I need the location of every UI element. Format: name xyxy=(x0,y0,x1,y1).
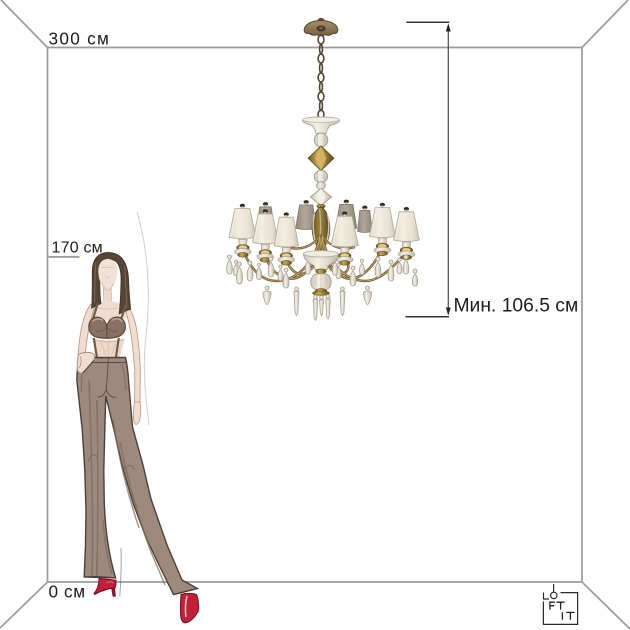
svg-text:170 см: 170 см xyxy=(52,239,103,256)
svg-text:300 см: 300 см xyxy=(49,29,111,49)
svg-text:Мин. 106.5 см: Мин. 106.5 см xyxy=(454,295,579,316)
svg-text:0 см: 0 см xyxy=(49,582,86,602)
